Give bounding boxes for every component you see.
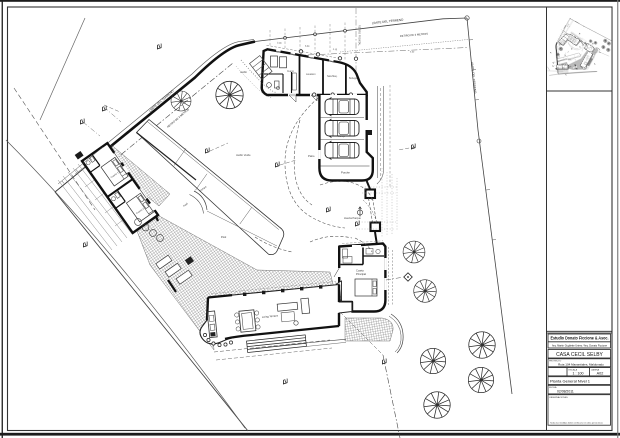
svg-text:Bodega: Bodega xyxy=(349,78,358,80)
svg-text:Jardin Verde: Jardin Verde xyxy=(236,153,251,157)
svg-text:Jardin: Jardin xyxy=(240,70,248,74)
svg-text:Cuarto: Cuarto xyxy=(356,269,364,273)
svg-text:1 : 100: 1 : 100 xyxy=(573,371,584,375)
svg-text:Huerta Parque: Huerta Parque xyxy=(344,216,361,220)
svg-text:Principal: Principal xyxy=(356,272,366,276)
svg-text:Planta General Nivel 1: Planta General Nivel 1 xyxy=(550,378,591,383)
svg-text:02/08/2011: 02/08/2011 xyxy=(557,390,574,394)
svg-text:FECHA: FECHA xyxy=(549,386,557,389)
svg-text:Sala Maq.: Sala Maq. xyxy=(327,76,338,78)
svg-text:Patio: Patio xyxy=(308,154,315,158)
svg-text:Pool: Pool xyxy=(221,235,227,239)
svg-text:OBSERVACIONES: OBSERVACIONES xyxy=(549,396,568,399)
svg-text:CASA CECIL SELBY: CASA CECIL SELBY xyxy=(556,352,603,358)
svg-text:Lavadero: Lavadero xyxy=(306,73,316,76)
svg-text:Todas las medidas deben verifi: Todas las medidas deben verificarse en o… xyxy=(550,422,604,425)
svg-text:Estudio Donato Ficcione & Asoc: Estudio Donato Ficcione & Asoc. xyxy=(551,336,609,342)
svg-text:Porche: Porche xyxy=(341,171,350,175)
svg-text:A02: A02 xyxy=(597,372,604,376)
svg-text:Ruta 104 Manantiales, Maldonad: Ruta 104 Manantiales, Maldonado xyxy=(558,362,604,366)
svg-text:Arq. Martin Gugliette Urtero /: Arq. Martin Gugliette Urtero / Arq. Dona… xyxy=(552,343,608,347)
svg-text:RETIRO FRONTAL: RETIRO FRONTAL xyxy=(358,25,361,46)
svg-text:Cuarto: Cuarto xyxy=(287,70,295,73)
